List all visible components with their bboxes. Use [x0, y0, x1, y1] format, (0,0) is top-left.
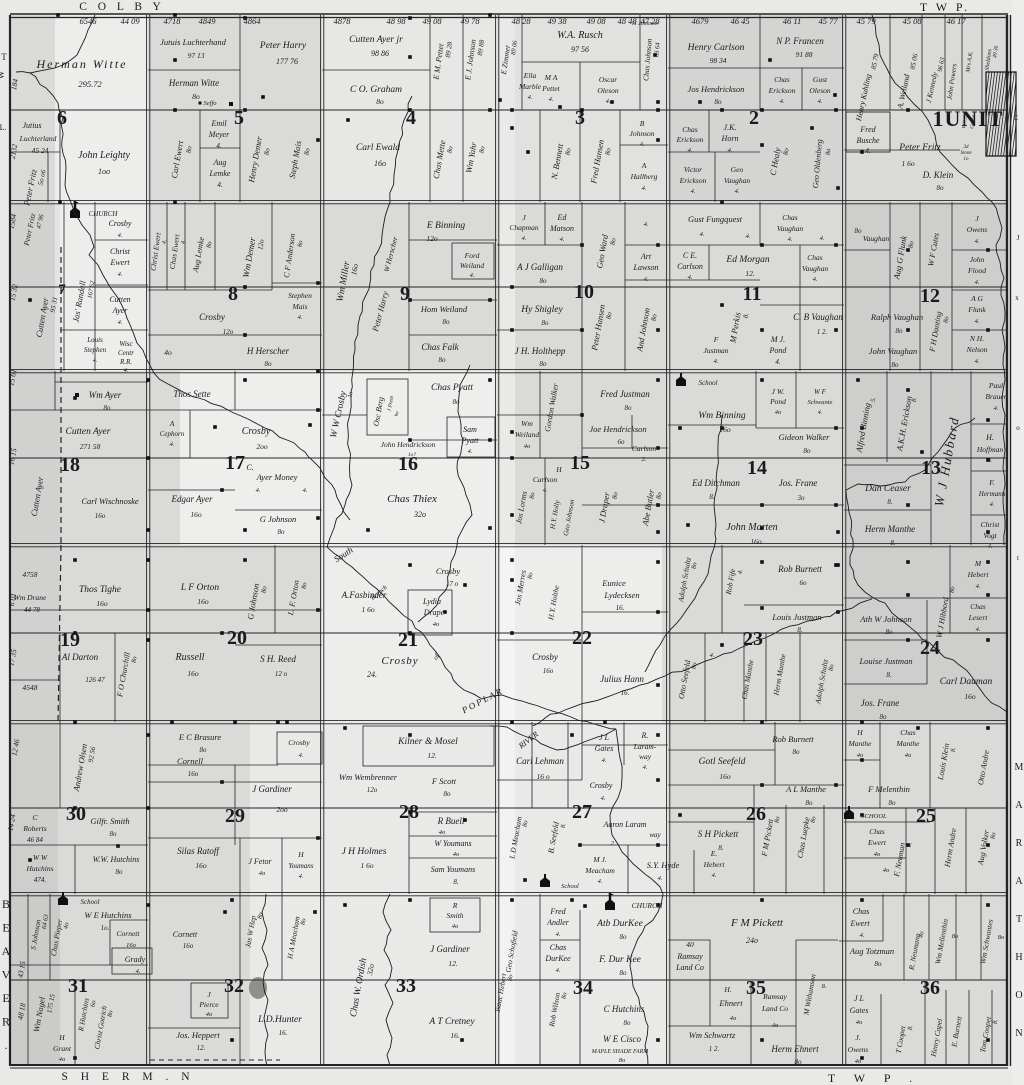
svg-text:29: 29: [225, 805, 245, 827]
svg-text:4.: 4.: [688, 147, 693, 154]
svg-text:E: E: [2, 921, 9, 935]
svg-text:4.: 4.: [470, 272, 475, 279]
svg-text:8o: 8o: [937, 184, 945, 192]
svg-text:4.: 4.: [700, 231, 705, 238]
svg-text:8.: 8.: [886, 671, 892, 679]
svg-text:4.: 4.: [528, 94, 533, 101]
svg-text:E.: E.: [710, 849, 718, 858]
svg-text:21: 21: [398, 629, 418, 651]
svg-text:Chas: Chas: [900, 728, 916, 737]
svg-text:J.K.: J.K.: [724, 123, 737, 132]
svg-text:49 78: 49 78: [460, 16, 480, 26]
svg-text:4.: 4.: [691, 188, 696, 195]
svg-text:Wm Drane: Wm Drane: [14, 593, 47, 602]
svg-text:M J.: M J.: [770, 335, 785, 344]
svg-text:F Melenthin: F Melenthin: [867, 784, 910, 794]
svg-text:E Binning: E Binning: [426, 221, 466, 231]
svg-text:Geo: Geo: [731, 165, 744, 174]
svg-text:8o: 8o: [880, 713, 888, 721]
svg-text:Carlson: Carlson: [632, 444, 656, 453]
svg-text:44 09: 44 09: [120, 16, 140, 26]
svg-text:Louis: Louis: [86, 336, 103, 344]
svg-text:4.: 4.: [860, 932, 865, 939]
svg-text:Seffo: Seffo: [204, 100, 218, 107]
svg-text:Wm Wembrenner: Wm Wembrenner: [339, 772, 398, 782]
svg-text:4o: 4o: [874, 851, 881, 858]
svg-text:Silas Ratoff: Silas Ratoff: [177, 846, 220, 856]
svg-text:34: 34: [573, 977, 593, 999]
svg-text:Cornett: Cornett: [173, 930, 198, 939]
svg-text:4.: 4.: [642, 185, 647, 192]
svg-text:Ella: Ella: [523, 71, 537, 80]
svg-text:A: A: [641, 161, 647, 170]
svg-text:J Gardiner: J Gardiner: [430, 944, 470, 954]
svg-text:4.: 4.: [775, 358, 781, 366]
svg-text:8o: 8o: [376, 97, 384, 106]
svg-text:John Marten: John Marten: [726, 522, 777, 533]
svg-text:Jos. Frane: Jos. Frane: [861, 698, 900, 708]
svg-text:Schwante: Schwante: [808, 399, 833, 406]
svg-text:8a: 8a: [825, 148, 833, 155]
svg-text:Chas: Chas: [782, 213, 798, 222]
svg-text:Herman Witte: Herman Witte: [168, 78, 219, 88]
svg-text:22: 22: [572, 627, 592, 649]
svg-text:J L: J L: [599, 733, 610, 742]
svg-text:16o: 16o: [95, 512, 106, 520]
svg-text:46 84: 46 84: [27, 836, 43, 844]
svg-text:Ramsay: Ramsay: [676, 952, 703, 961]
svg-text:H: H: [297, 850, 304, 859]
svg-text:N P. Francen: N P. Francen: [775, 36, 824, 46]
svg-text:Lesert: Lesert: [968, 613, 989, 622]
svg-text:45 08: 45 08: [902, 16, 922, 26]
svg-text:Chas: Chas: [853, 907, 869, 916]
svg-text:15: 15: [570, 452, 590, 474]
svg-text:46 45: 46 45: [730, 16, 749, 26]
svg-text:S H. Reed: S H. Reed: [260, 654, 296, 664]
svg-text:way: way: [649, 831, 661, 839]
svg-text:98 86: 98 86: [371, 49, 389, 58]
svg-text:Fred: Fred: [859, 125, 876, 134]
svg-text:B: B: [2, 897, 10, 911]
svg-text:Crosby: Crosby: [199, 312, 225, 322]
svg-text:W E Hutchins: W E Hutchins: [84, 910, 132, 920]
svg-text:4.: 4.: [556, 931, 561, 938]
svg-text:way: way: [639, 752, 652, 761]
svg-text:Erickson: Erickson: [676, 135, 704, 144]
svg-text:4.: 4.: [712, 872, 717, 879]
svg-text:L F Orton: L F Orton: [180, 583, 220, 593]
svg-text:Hallberg: Hallberg: [630, 172, 658, 181]
svg-text:Paul: Paul: [988, 381, 1003, 390]
svg-text:Fred: Fred: [549, 907, 566, 916]
svg-text:4.: 4.: [522, 235, 527, 242]
svg-text:H: H: [58, 1033, 65, 1042]
svg-text:Gust Fungquest: Gust Fungquest: [688, 214, 743, 224]
svg-text:4.: 4.: [988, 543, 993, 550]
svg-text:8o: 8o: [444, 790, 452, 798]
svg-text:F: F: [713, 335, 719, 344]
svg-text:F Scott: F Scott: [431, 776, 457, 786]
svg-text:44 78: 44 78: [24, 606, 40, 614]
svg-text:4.: 4.: [975, 279, 980, 286]
svg-text:48 28: 48 28: [511, 16, 531, 26]
svg-text:Crosby: Crosby: [381, 655, 418, 667]
svg-text:16.: 16.: [450, 1031, 460, 1040]
svg-text:4.: 4.: [303, 487, 308, 494]
svg-text:Aug: Aug: [213, 158, 227, 167]
svg-text:Chas: Chas: [807, 253, 823, 262]
svg-text:2.: 2.: [611, 840, 616, 847]
svg-text:Grady: Grady: [125, 955, 146, 964]
svg-text:8o: 8o: [886, 628, 894, 636]
svg-text:4.: 4.: [976, 583, 981, 590]
svg-text:School: School: [80, 898, 99, 906]
svg-text:Land Co: Land Co: [675, 963, 704, 972]
svg-text:Hutchins: Hutchins: [25, 864, 53, 873]
svg-text:16o: 16o: [374, 159, 386, 168]
svg-text:8o: 8o: [620, 933, 628, 941]
svg-text:4o: 4o: [453, 851, 460, 858]
svg-text:Cephorn: Cephorn: [160, 430, 185, 438]
svg-text:Ed Ditchman: Ed Ditchman: [691, 478, 740, 488]
svg-text:16o: 16o: [126, 942, 137, 949]
svg-text:T: T: [1016, 914, 1022, 925]
svg-text:Wm Schwartz: Wm Schwartz: [689, 1030, 736, 1040]
svg-text:4.: 4.: [865, 147, 871, 155]
svg-text:16o: 16o: [183, 942, 194, 950]
svg-text:4o: 4o: [883, 867, 890, 874]
svg-text:8o: 8o: [875, 960, 883, 968]
svg-text:4.: 4.: [606, 98, 611, 105]
svg-text:8o: 8o: [620, 969, 628, 977]
svg-text:23: 23: [743, 628, 763, 650]
svg-text:1o.: 1o.: [101, 924, 110, 932]
svg-text:4.: 4.: [975, 238, 980, 245]
svg-text:Ewert: Ewert: [867, 838, 887, 847]
svg-text:8o: 8o: [624, 1019, 632, 1027]
svg-text:4.: 4.: [468, 448, 473, 455]
svg-text:4o: 4o: [524, 443, 531, 450]
svg-text:Chas: Chas: [869, 827, 885, 836]
svg-text:16o: 16o: [964, 692, 976, 701]
svg-text:4.: 4.: [644, 276, 649, 283]
svg-text:3o: 3o: [797, 494, 806, 502]
svg-text:O: O: [1015, 990, 1022, 1001]
svg-text:27: 27: [572, 801, 592, 823]
svg-text:8o: 8o: [998, 934, 1005, 941]
svg-text:DurKee: DurKee: [544, 954, 571, 963]
svg-text:Art: Art: [640, 252, 652, 261]
svg-text:8o: 8o: [439, 356, 447, 364]
svg-text:Aaron Laram: Aaron Laram: [602, 820, 646, 829]
svg-text:4.: 4.: [994, 405, 999, 412]
svg-text:N H.: N H.: [969, 334, 984, 343]
svg-text:J L: J L: [854, 994, 865, 1003]
svg-text:25: 25: [916, 805, 936, 827]
svg-text:49 38: 49 38: [547, 16, 567, 26]
svg-text:12.: 12.: [197, 1044, 206, 1052]
svg-text:Thos Sette: Thos Sette: [173, 389, 210, 399]
svg-text:32o: 32o: [413, 510, 426, 519]
svg-text:W F: W F: [814, 388, 827, 396]
svg-text:Roberts: Roberts: [22, 824, 46, 833]
svg-text:16o: 16o: [750, 537, 762, 546]
svg-text:8o: 8o: [200, 746, 208, 754]
svg-text:Crosby: Crosby: [109, 219, 132, 228]
svg-text:R.: R.: [641, 731, 649, 740]
svg-text:F M Pickett: F M Pickett: [730, 917, 784, 929]
svg-text:4.: 4.: [640, 141, 645, 148]
svg-text:H Johnson: H Johnson: [631, 21, 658, 27]
svg-text:8o: 8o: [540, 360, 548, 368]
svg-text:Laram-: Laram-: [633, 742, 657, 751]
svg-text:F. Dur Kee: F. Dur Kee: [598, 955, 641, 965]
svg-text:45 77: 45 77: [818, 16, 838, 26]
svg-text:Lydecksen: Lydecksen: [603, 590, 639, 600]
svg-text:16.: 16.: [279, 1029, 288, 1037]
svg-text:S.Y. Hyde: S.Y. Hyde: [647, 860, 680, 870]
svg-text:48 98: 48 98: [386, 16, 406, 26]
svg-text:8o: 8o: [892, 361, 900, 369]
svg-text:Russell: Russell: [175, 652, 205, 663]
svg-text:1o: 1o: [964, 157, 970, 162]
svg-text:Atb DurKee: Atb DurKee: [596, 919, 643, 929]
svg-text:Hebert: Hebert: [703, 860, 726, 869]
svg-text:8o: 8o: [542, 319, 550, 327]
svg-text:Crosby: Crosby: [532, 652, 558, 662]
svg-text:4.: 4.: [976, 626, 981, 633]
svg-text:Meyer: Meyer: [208, 130, 230, 139]
svg-text:8o: 8o: [889, 799, 897, 807]
svg-text:4.: 4.: [813, 276, 818, 283]
svg-text:R: R: [1016, 838, 1023, 849]
svg-text:4878: 4878: [334, 16, 352, 26]
svg-text:4o: 4o: [772, 1022, 779, 1029]
svg-text:97 56: 97 56: [571, 45, 589, 54]
svg-text:4.: 4.: [118, 319, 123, 326]
svg-text:Carlson: Carlson: [533, 475, 557, 484]
svg-text:4679: 4679: [692, 16, 710, 26]
svg-text:MAPLE SHADE FARM: MAPLE SHADE FARM: [591, 1049, 650, 1055]
svg-text:Owens: Owens: [848, 1045, 868, 1054]
svg-text:16o: 16o: [190, 510, 202, 519]
svg-text:CHURCH: CHURCH: [89, 210, 119, 218]
svg-text:295.72: 295.72: [78, 79, 102, 89]
svg-text:12o: 12o: [223, 328, 234, 336]
svg-text:L.D.Hunter: L.D.Hunter: [257, 1015, 302, 1025]
svg-text:4.: 4.: [975, 318, 980, 325]
svg-text:M A: M A: [544, 73, 558, 82]
svg-text:Jutius: Jutius: [22, 121, 41, 130]
svg-text:16o: 16o: [197, 597, 209, 606]
svg-text:M: M: [974, 559, 982, 568]
svg-text:4.: 4.: [714, 358, 719, 365]
svg-text:R: R: [2, 1015, 10, 1029]
svg-text:A G: A G: [970, 294, 983, 303]
svg-text:R.R.: R.R.: [119, 358, 132, 366]
svg-text:Peter Fritz: Peter Fritz: [898, 143, 941, 153]
svg-text:Lawson: Lawson: [633, 263, 659, 272]
svg-text:Emil: Emil: [210, 119, 227, 128]
svg-text:Chas: Chas: [774, 75, 790, 84]
svg-text:T W P.: T W P.: [920, 0, 970, 14]
svg-text:4o: 4o: [730, 1015, 737, 1022]
svg-text:C.: C.: [246, 463, 253, 472]
svg-text:8.: 8.: [797, 626, 803, 634]
svg-text:John Hendrickson: John Hendrickson: [381, 440, 436, 449]
svg-text:Chas: Chas: [550, 943, 566, 952]
svg-text:8o: 8o: [192, 92, 200, 101]
svg-text:C. B Vaughan: C. B Vaughan: [793, 312, 843, 322]
svg-text:4.: 4.: [118, 271, 123, 278]
svg-text:45 79: 45 79: [856, 16, 876, 26]
svg-text:Rob Burnett: Rob Burnett: [771, 734, 814, 744]
svg-text:8o: 8o: [795, 1058, 803, 1066]
svg-text:Justman: Justman: [704, 346, 729, 355]
svg-text:Ayer Money: Ayer Money: [256, 472, 298, 482]
svg-text:46 17: 46 17: [946, 16, 966, 26]
svg-text:6o: 6o: [800, 579, 808, 587]
svg-text:Al Darton: Al Darton: [61, 652, 99, 662]
svg-text:8o: 8o: [265, 360, 273, 368]
svg-text:Hoffman: Hoffman: [976, 445, 1004, 454]
svg-text:12o: 12o: [426, 234, 438, 243]
svg-text:Brauer: Brauer: [985, 392, 1006, 401]
svg-text:T: T: [1, 52, 7, 62]
svg-text:Rob Burnett: Rob Burnett: [777, 564, 822, 574]
svg-text:Wm: Wm: [521, 419, 533, 428]
svg-text:12.: 12.: [448, 959, 458, 968]
svg-text:4o: 4o: [164, 348, 172, 357]
svg-text:Joe Hendrickson: Joe Hendrickson: [589, 424, 646, 434]
svg-text:A J Galligan: A J Galligan: [516, 262, 563, 272]
svg-text:4o: 4o: [59, 1056, 66, 1063]
svg-text:4o: 4o: [905, 752, 912, 759]
svg-text:Jos Hendrickson: Jos Hendrickson: [688, 84, 745, 94]
svg-text:4.: 4.: [818, 409, 823, 416]
svg-text:Pond: Pond: [769, 397, 786, 406]
svg-text:Manthe: Manthe: [896, 739, 921, 748]
svg-text:16.: 16.: [616, 604, 625, 612]
svg-text:16o: 16o: [719, 772, 731, 781]
svg-text:Mais: Mais: [292, 302, 308, 311]
svg-text:8o: 8o: [804, 447, 812, 455]
svg-text:W Youmans: W Youmans: [434, 839, 471, 848]
svg-text:Owens: Owens: [967, 225, 987, 234]
svg-text:91 88: 91 88: [796, 50, 813, 59]
svg-text:Pierce: Pierce: [198, 1000, 219, 1009]
svg-text:Wisc: Wisc: [119, 340, 133, 348]
svg-text:97 13: 97 13: [188, 51, 205, 60]
svg-text:8.: 8.: [453, 878, 459, 886]
svg-text:4o: 4o: [857, 752, 864, 759]
svg-text:Ralph Vaughan: Ralph Vaughan: [870, 312, 923, 322]
svg-text:4.: 4.: [549, 96, 554, 103]
svg-text:A: A: [169, 419, 175, 428]
svg-text:A: A: [1015, 800, 1023, 811]
svg-text:12o: 12o: [367, 786, 378, 794]
svg-text:J Gardiner: J Gardiner: [252, 784, 292, 794]
svg-text:John: John: [970, 255, 985, 264]
svg-text:8o: 8o: [715, 98, 723, 106]
svg-text:4.: 4.: [688, 274, 693, 281]
svg-text:H Herscher: H Herscher: [246, 346, 290, 356]
svg-text:Hom Weiland: Hom Weiland: [420, 304, 468, 314]
svg-text:Chas Falk: Chas Falk: [421, 342, 459, 352]
svg-text:Centr: Centr: [118, 349, 134, 357]
svg-text:4o: 4o: [856, 1019, 863, 1026]
svg-text:20: 20: [227, 627, 247, 649]
svg-text:S H E R M . N: S H E R M . N: [61, 1071, 194, 1083]
svg-text:C Hutchins: C Hutchins: [604, 1004, 645, 1014]
svg-text:Stephen: Stephen: [288, 291, 312, 300]
svg-text:Peter Harry: Peter Harry: [259, 41, 307, 51]
svg-text:33: 33: [396, 975, 416, 997]
svg-text:4.: 4.: [780, 98, 785, 105]
svg-text:1 2.: 1 2.: [709, 1045, 720, 1053]
svg-text:Stone: Stone: [960, 151, 972, 156]
svg-text:24.: 24.: [367, 670, 377, 679]
svg-text:o: o: [1016, 424, 1020, 432]
svg-text:Smith: Smith: [446, 911, 463, 920]
svg-text:Weiland: Weiland: [460, 261, 485, 270]
svg-text:4.: 4.: [658, 875, 663, 882]
svg-text:6o: 6o: [618, 438, 626, 446]
svg-text:Chas Thiex: Chas Thiex: [387, 493, 437, 505]
svg-text:S H Pickett: S H Pickett: [698, 829, 739, 839]
svg-text:45 24: 45 24: [32, 146, 49, 155]
svg-text:J H Holmes: J H Holmes: [342, 847, 387, 857]
svg-text:16o: 16o: [96, 599, 108, 608]
svg-text:Gates: Gates: [595, 744, 614, 753]
svg-text:12.: 12.: [427, 751, 437, 760]
svg-text:Flunk: Flunk: [967, 305, 986, 314]
svg-text:School: School: [561, 883, 579, 890]
svg-text:8o: 8o: [540, 277, 548, 285]
svg-text:Stephen: Stephen: [84, 346, 107, 354]
svg-text:Marble: Marble: [518, 82, 542, 91]
svg-text:46 11: 46 11: [783, 16, 802, 26]
svg-text:4.: 4.: [643, 764, 648, 771]
svg-text:.: .: [5, 1038, 8, 1052]
svg-text:271 58: 271 58: [80, 442, 101, 451]
svg-text:12: 12: [920, 285, 940, 307]
svg-text:Nelson: Nelson: [966, 345, 988, 354]
svg-text:Jutuis Luchterhand: Jutuis Luchterhand: [160, 37, 226, 47]
svg-text:16o: 16o: [195, 861, 207, 870]
svg-text:Crosby: Crosby: [288, 738, 310, 747]
svg-text:Cornell: Cornell: [177, 756, 204, 766]
svg-text:Gilfr. Smith: Gilfr. Smith: [90, 816, 129, 826]
svg-text:F.: F.: [988, 478, 995, 487]
svg-text:4.: 4.: [820, 235, 825, 242]
svg-text:8o: 8o: [443, 318, 451, 326]
svg-text:8o: 8o: [110, 830, 118, 838]
svg-text:1 6o: 1 6o: [901, 159, 914, 168]
svg-text:Hebert: Hebert: [967, 570, 990, 579]
svg-text:A T Cretney: A T Cretney: [428, 1017, 475, 1027]
svg-text:Carl Wischnoske: Carl Wischnoske: [81, 496, 139, 506]
svg-text:19: 19: [60, 629, 80, 651]
svg-text:49 08: 49 08: [586, 16, 606, 26]
svg-text:4.: 4.: [299, 873, 304, 880]
svg-text:J H. Holthepp: J H. Holthepp: [515, 346, 566, 356]
svg-text:V: V: [2, 968, 11, 982]
svg-text:126 47: 126 47: [85, 676, 105, 684]
svg-text:Thos Tighe: Thos Tighe: [79, 585, 121, 595]
svg-text:4o: 4o: [439, 829, 446, 836]
